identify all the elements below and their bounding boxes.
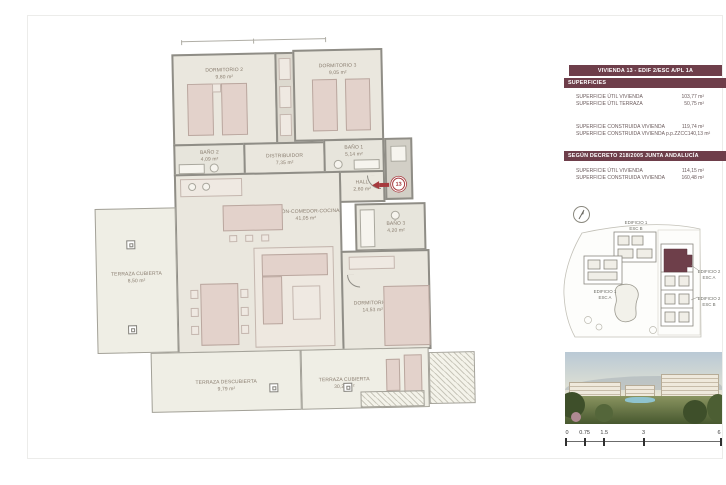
outdoor-seat: [386, 359, 401, 391]
room-area: 4,09 m²: [201, 156, 219, 162]
room-area: 5,14 m²: [345, 151, 363, 157]
wardrobe: [280, 114, 292, 136]
dining-table: [200, 283, 239, 346]
wardrobe: [349, 256, 395, 270]
scale-tick: [584, 438, 586, 446]
row-value: 114,15 m²: [682, 168, 704, 174]
unit-title: VIVIENDA 13 - EDIF 2/ESC A/PL 1A: [598, 68, 693, 74]
room-area: 2,60 m²: [353, 186, 371, 192]
table-row: SUPERFICIE CONSTRUIDA VIVIENDA 119,74 m²: [576, 124, 704, 130]
row-value: 160,48 m²: [681, 175, 704, 181]
bed: [345, 78, 371, 131]
decree-header: SEGÚN DECRETO 218/2005 JUNTA ANDALUCÍA: [568, 153, 699, 159]
sofa-chaise: [262, 276, 283, 324]
chair: [240, 289, 248, 298]
bed: [187, 84, 214, 137]
superficies-header-bar: SUPERFICIES: [564, 78, 726, 88]
room-dormitorio1: DORMITORIO 1 14,53 m²: [341, 249, 432, 351]
room-label: TERRAZA DESCUBIERTA: [195, 379, 257, 386]
chair: [190, 290, 198, 299]
column-marker: [128, 325, 137, 334]
unit-title-bar: VIVIENDA 13 - EDIF 2/ESC A/PL 1A: [569, 65, 722, 76]
plan-sheet: { "panel": { "title": "VIVIENDA 13 - EDI…: [0, 0, 726, 485]
planter: [429, 351, 476, 404]
washbasin: [334, 160, 343, 169]
elevator: [390, 145, 406, 161]
bed: [312, 79, 338, 132]
dimension-line-top: [181, 38, 326, 42]
room-label: TERRAZA CUBIERTA: [111, 271, 162, 278]
entrance-arrow-icon: [379, 183, 389, 187]
project-render-photo: [565, 352, 722, 424]
room-bano2: BAÑO 2 4,09 m²: [173, 143, 246, 177]
bed: [383, 285, 430, 346]
row-value: 103,77 m²: [681, 94, 704, 100]
room-area: 4,20 m²: [387, 227, 405, 233]
siteplan-label: EDIFICIO 2: [698, 269, 721, 274]
siteplan-label: ESC B: [702, 302, 715, 307]
room-bano3: BAÑO 3 4,20 m²: [355, 202, 427, 251]
washbasin: [210, 163, 219, 172]
siteplan-label: EDIFICIO 2: [698, 296, 721, 301]
room-area: 9,05 m²: [329, 69, 347, 75]
scale-bar: 0 0.75 1.5 3 6: [565, 430, 722, 448]
bath-counter: [179, 164, 205, 175]
sofa: [262, 253, 328, 276]
room-label: DORMITORIO 3: [319, 63, 357, 70]
scale-tick: [603, 438, 605, 446]
chair: [241, 325, 249, 334]
tree: [707, 394, 722, 422]
siteplan-label: EDIFICIO 1: [594, 289, 617, 294]
scale-tick: [565, 438, 567, 446]
room-terraza-descubierta: TERRAZA DESCUBIERTA 9,79 m²: [151, 350, 302, 413]
row-label: SUPERFICIE ÚTIL VIVIENDA: [576, 168, 643, 174]
siteplan-label: ESC A: [599, 295, 612, 300]
swimming-pool: [625, 397, 655, 403]
row-label: SUPERFICIE ÚTIL VIVIENDA: [576, 94, 643, 100]
room-dormitorio3: DORMITORIO 3 9,05 m²: [292, 48, 384, 142]
room-label: DORMITORIO 2: [205, 67, 243, 74]
bedroom-door-arc: [347, 274, 360, 287]
stool: [245, 235, 253, 242]
scale-tick-label: 0.75: [579, 430, 590, 436]
superficies-header: SUPERFICIES: [568, 80, 606, 86]
site-plan: EDIFICIO 1 ESC B EDIFICIO 1 ESC A EDIFIC…: [558, 200, 724, 345]
row-value: 140,13 m²: [688, 131, 711, 137]
bathtub: [360, 209, 376, 247]
room-label: BAÑO 3: [386, 221, 405, 227]
coffee-table: [292, 285, 321, 320]
room-salon: SALÓN-COMEDOR-COCINA 41,05 m²: [174, 171, 345, 354]
decree-header-bar: SEGÚN DECRETO 218/2005 JUNTA ANDALUCÍA: [564, 151, 726, 161]
table-row: SUPERFICIE ÚTIL VIVIENDA 103,77 m²: [576, 94, 704, 100]
room-dormitorio2: DORMITORIO 2 9,80 m²: [171, 52, 278, 146]
room-area: 7,35 m²: [276, 160, 294, 166]
floor-plan: DORMITORIO 2 9,80 m² DORMITORIO 3 9,05 m…: [86, 31, 489, 424]
scale-tick-label: 1.5: [600, 430, 608, 436]
column-marker: [126, 240, 135, 249]
entrance-arrow-head-icon: [372, 181, 379, 189]
wardrobe: [278, 58, 290, 80]
nightstand: [212, 83, 221, 92]
column-marker: [343, 383, 352, 392]
planter: [360, 390, 424, 407]
pool-outline: [615, 284, 639, 322]
outdoor-sofa: [404, 354, 423, 392]
scale-tick-label: 6: [717, 430, 720, 436]
chair: [241, 307, 249, 316]
room-area: 14,53 m²: [362, 307, 383, 313]
building-edificio1-escA: [584, 256, 622, 284]
table-row: SUPERFICIE ÚTIL VIVIENDA 114,15 m²: [576, 168, 704, 174]
table-row: SUPERFICIE CONSTRUIDA VIVIENDA p.p.ZZCC …: [576, 131, 704, 137]
room-label: DISTRIBUIDOR: [266, 153, 303, 160]
siteplan-label: ESC B: [629, 226, 642, 231]
bed: [221, 83, 248, 136]
bath-counter: [354, 159, 380, 170]
scale-tick-label: 0: [565, 430, 568, 436]
tree: [595, 404, 613, 422]
room-bano1: BAÑO 1 5,14 m²: [323, 138, 385, 173]
scale-tick-label: 3: [642, 430, 645, 436]
row-label: SUPERFICIE CONSTRUIDA VIVIENDA: [576, 124, 665, 130]
chair: [191, 326, 199, 335]
scale-tick: [643, 438, 645, 446]
room-distribuidor: DISTRIBUIDOR 7,35 m²: [243, 141, 326, 175]
room-label: BAÑO 1: [344, 144, 363, 150]
room-label: HALL: [356, 179, 369, 185]
siteplan-label: EDIFICIO 1: [625, 220, 648, 225]
row-label: SUPERFICIE ÚTIL TERRAZA: [576, 101, 643, 107]
room-area: 9,80 m²: [215, 74, 233, 80]
table-row: SUPERFICIE CONSTRUIDA VIVIENDA 160,48 m²: [576, 175, 704, 181]
room-area: 8,50 m²: [128, 278, 146, 284]
room-label: BAÑO 2: [200, 149, 219, 155]
row-value: 50,75 m²: [684, 101, 704, 107]
room-area: 9,79 m²: [217, 386, 235, 392]
column-marker: [269, 383, 278, 392]
stool: [229, 235, 237, 242]
unit-number: 13: [395, 181, 401, 187]
table-row: SUPERFICIE ÚTIL TERRAZA 50,75 m²: [576, 101, 704, 107]
siteplan-label: ESC A: [703, 275, 716, 280]
kitchen-island: [223, 204, 284, 231]
flower-bush: [571, 412, 581, 422]
tree: [683, 400, 707, 424]
row-value: 119,74 m²: [682, 124, 704, 130]
room-area: 41,05 m²: [295, 215, 316, 221]
row-label: SUPERFICIE CONSTRUIDA VIVIENDA: [576, 175, 665, 181]
stool: [261, 234, 269, 241]
washbasin: [391, 211, 400, 220]
row-label: SUPERFICIE CONSTRUIDA VIVIENDA p.p.ZZCC: [576, 131, 688, 137]
chair: [191, 308, 199, 317]
scale-tick: [720, 438, 722, 446]
wardrobe: [279, 86, 291, 108]
